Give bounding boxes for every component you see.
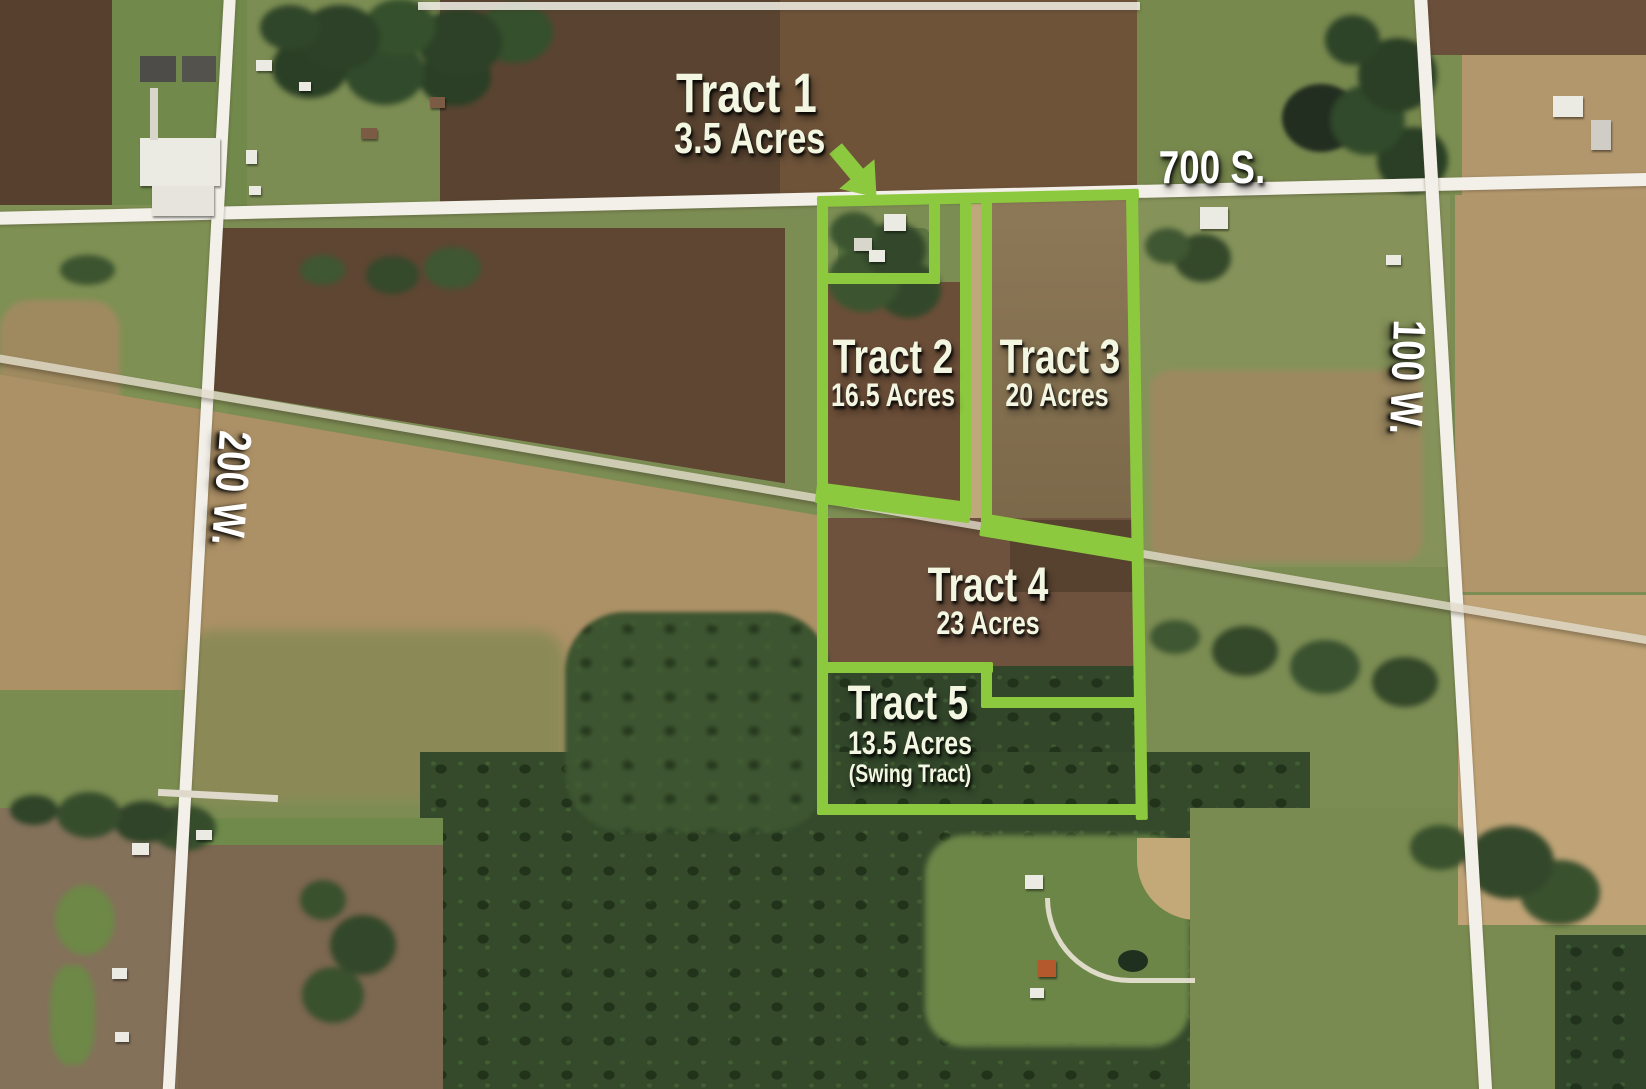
tract3-label-acres: 20 Acres <box>1005 377 1108 414</box>
farm-building <box>1025 875 1043 889</box>
tract1-boundary-south <box>817 273 940 284</box>
tract5-label-acres: 13.5 Acres <box>848 725 972 762</box>
tract4-boundary-south-east <box>981 697 1139 708</box>
school-building <box>140 138 220 186</box>
field-patch <box>178 845 443 1089</box>
field-patch <box>780 0 1140 201</box>
house <box>361 128 377 139</box>
house <box>115 1032 129 1042</box>
tract1-boundary-east <box>929 203 940 283</box>
tract1-label-acres: 3.5 Acres <box>674 114 825 164</box>
tract5-label-note: (Swing Tract) <box>849 760 971 789</box>
house <box>1386 255 1401 265</box>
homestead-barn <box>884 214 906 231</box>
tract3-boundary-west <box>981 198 992 528</box>
field-patch <box>1455 195 1646 592</box>
tree-cluster <box>260 5 320 50</box>
forest-patch <box>1555 935 1646 1089</box>
tree-cluster <box>1145 228 1190 264</box>
house <box>1200 207 1228 229</box>
house <box>1030 988 1044 998</box>
tract5-boundary-south <box>817 804 1144 815</box>
road-label-100w: 100 W. <box>1379 319 1437 435</box>
house <box>249 186 261 195</box>
house <box>246 150 257 164</box>
parking-lot <box>140 56 176 82</box>
house <box>299 82 311 91</box>
school-building <box>152 186 214 216</box>
tract4-label-acres: 23 Acres <box>936 605 1039 642</box>
road-label-200w: 200 W. <box>201 429 263 547</box>
tree-cluster <box>1325 15 1380 65</box>
tract4-boundary-south-west <box>817 662 993 673</box>
house <box>430 97 445 108</box>
field-patch <box>1458 595 1646 925</box>
tree-cluster <box>10 795 58 825</box>
field-patch <box>55 885 115 955</box>
forest-patch <box>565 612 830 832</box>
homestead-shed <box>869 250 885 262</box>
field-patch <box>1424 0 1646 58</box>
tract-boundary-west <box>817 201 828 815</box>
parking-lot <box>182 56 216 82</box>
tract5-label-name: Tract 5 <box>848 676 969 731</box>
house <box>256 60 272 71</box>
tree-cluster <box>1150 620 1200 654</box>
farm-building <box>1553 96 1583 117</box>
driveway-path <box>150 88 158 140</box>
field-patch <box>50 965 95 1065</box>
grain-silo <box>1591 120 1611 150</box>
road-line-top <box>418 2 1140 10</box>
house <box>112 968 127 979</box>
tree-cluster <box>1410 825 1470 870</box>
tree-cluster <box>60 255 115 285</box>
tree-cluster <box>300 880 346 920</box>
aerial-auction-map: Tract 1 3.5 Acres Tract 2 16.5 Acres Tra… <box>0 0 1646 1089</box>
farm-building <box>196 830 212 840</box>
road-label-700s: 700 S. <box>1159 140 1265 194</box>
orange-roof-building <box>1038 960 1056 977</box>
pond <box>1282 84 1360 152</box>
tract2-boundary-east <box>960 202 971 510</box>
tract2-label-acres: 16.5 Acres <box>831 377 955 414</box>
house <box>132 843 149 855</box>
tree-cluster <box>300 255 345 285</box>
field-patch <box>0 0 118 208</box>
